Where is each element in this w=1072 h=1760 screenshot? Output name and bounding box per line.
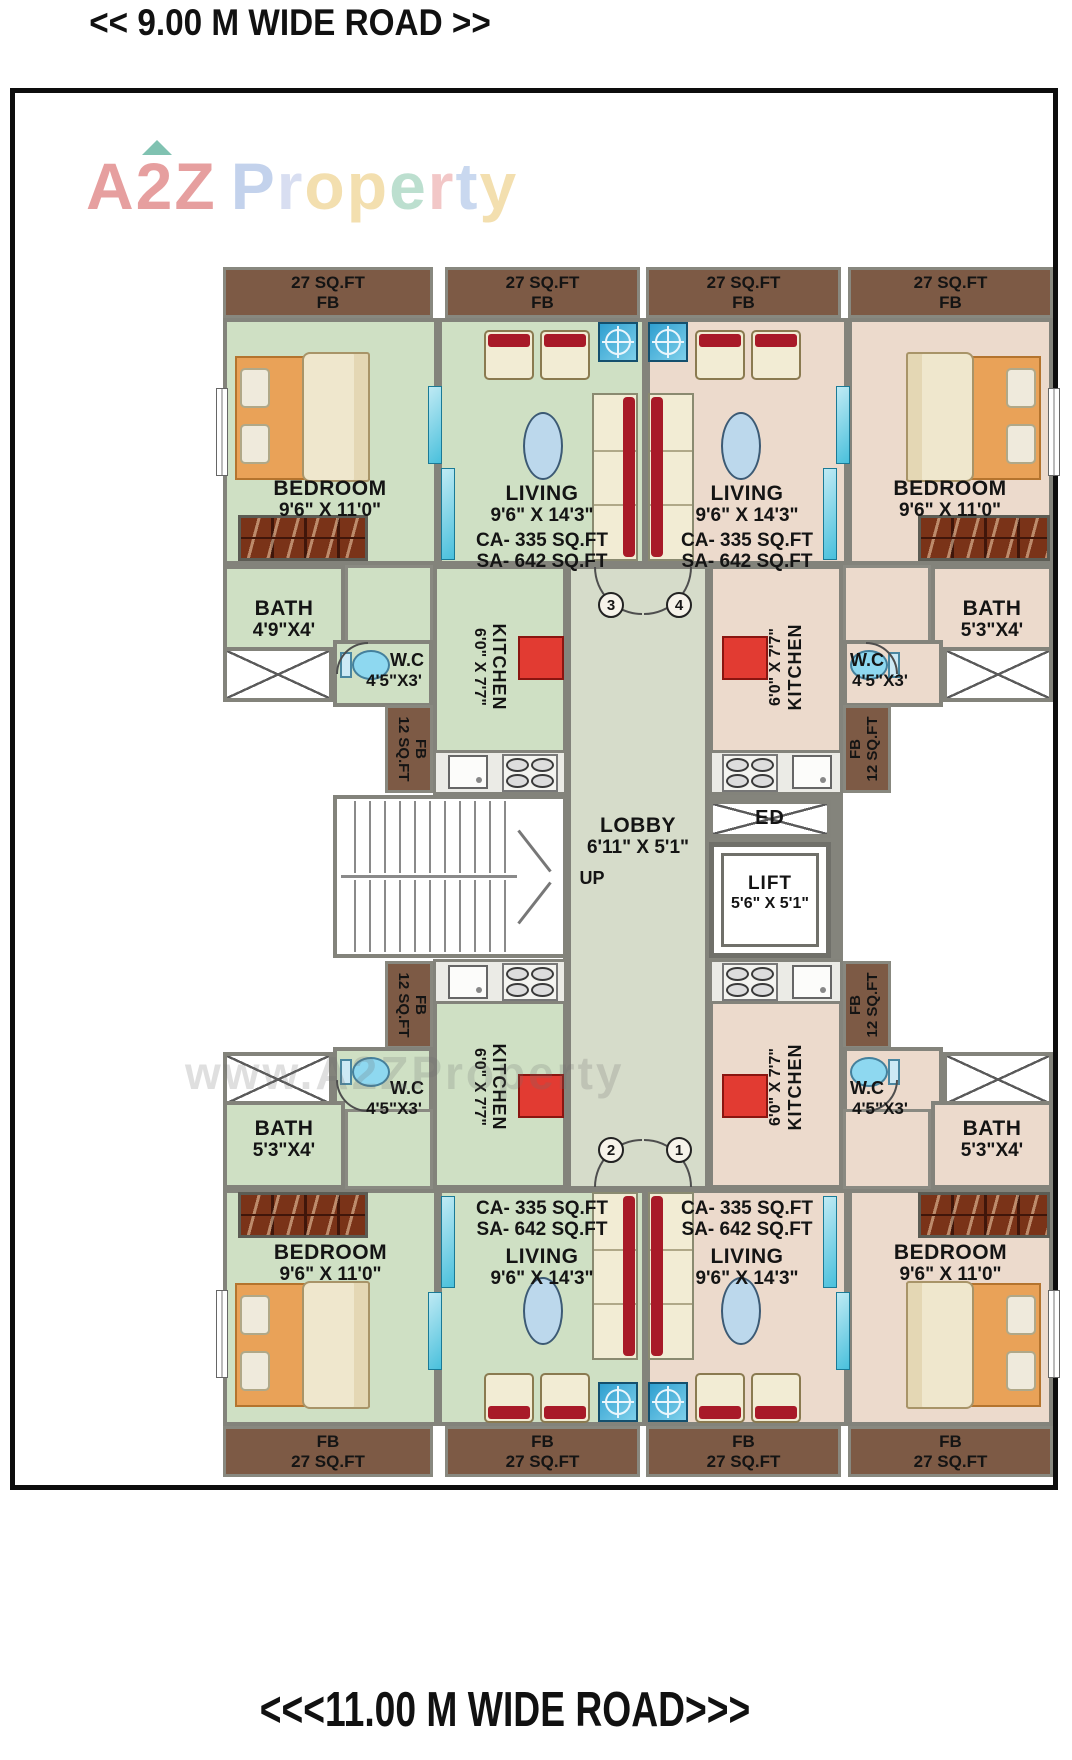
window-icon (1048, 388, 1060, 476)
coffee-table (523, 412, 563, 480)
flower-bed-12-top-right-label: FB 12 SQ.FT (847, 689, 887, 809)
passage-unit3 (345, 565, 433, 645)
bed (302, 352, 370, 482)
pillow (1006, 1295, 1036, 1335)
brand-watermark-a2z: A2Z (86, 149, 217, 223)
window-icon (216, 388, 228, 476)
electrical-duct-label: ED (713, 807, 827, 830)
pillow (1006, 368, 1036, 408)
kitchen-unit4-label: 6'0" X 7'7" KITCHEN (767, 602, 811, 732)
kitchen-platform (518, 636, 564, 680)
bedroom-unit3-label: BEDROOM 9'6" X 11'0" (240, 478, 420, 521)
pillow (1006, 1351, 1036, 1391)
wc-unit1-label: W.C 4'5"X3' (838, 1078, 922, 1119)
kitchen-sink (792, 965, 832, 999)
flower-bed-12-top-left-label: FB 12 SQ.FT (389, 689, 429, 809)
flower-bed-bottom-1: FB27 SQ.FT (223, 1426, 433, 1477)
ceiling-fan-icon (648, 322, 688, 362)
duct-unit4 (943, 647, 1053, 702)
lobby-label: LOBBY 6'11" X 5'1" (577, 815, 699, 858)
armchair (484, 1373, 534, 1423)
lift: LIFT 5'6" X 5'1" (709, 842, 831, 958)
unit-number-3: 3 (598, 592, 624, 618)
flower-bed-bottom-4: FB27 SQ.FT (848, 1426, 1053, 1477)
bedroom-unit2-label: BEDROOM 9'6" X 11'0" (233, 1242, 428, 1285)
armchair (540, 1373, 590, 1423)
www-watermark: www.A2ZProperty (185, 1046, 624, 1100)
living-unit1-label: CA- 335 SQ.FT SA- 642 SQ.FT LIVING 9'6" … (658, 1198, 836, 1289)
duct-unit1 (943, 1052, 1053, 1107)
bath-unit4-label: BATH 5'3"X4' (935, 598, 1049, 641)
coffee-table (721, 412, 761, 480)
stair-treads-lower (341, 880, 517, 952)
armchair (540, 330, 590, 380)
bath-unit3-label: BATH 4'9"X4' (227, 598, 341, 641)
living-unit3-label: LIVING 9'6" X 14'3" CA- 335 SQ.FT SA- 64… (453, 483, 631, 572)
bed (906, 1281, 974, 1409)
flower-bed-bottom-2: FB27 SQ.FT (445, 1426, 640, 1477)
kitchen-sink (792, 755, 832, 789)
stair-treads-upper (341, 801, 517, 873)
pillow (240, 368, 270, 408)
wardrobe-unit4 (918, 515, 1050, 561)
living-unit2-label: CA- 335 SQ.FT SA- 642 SQ.FT LIVING 9'6" … (453, 1198, 631, 1289)
stove-icon (722, 754, 778, 792)
window-vent-icon (836, 1292, 850, 1370)
staircase (333, 795, 567, 958)
wardrobe-unit1 (918, 1192, 1050, 1238)
floor-plan-canvas: << 9.00 M WIDE ROAD >> <<<11.00 M WIDE R… (0, 0, 1072, 1760)
lift-label: LIFT 5'6" X 5'1" (714, 873, 826, 913)
pillow (1006, 424, 1036, 464)
ceiling-fan-icon (648, 1382, 688, 1422)
armchair (695, 330, 745, 380)
window-vent-icon (836, 386, 850, 464)
ceiling-fan-icon (598, 1382, 638, 1422)
living-unit4-label: LIVING 9'6" X 14'3" CA- 335 SQ.FT SA- 64… (658, 483, 836, 572)
bedroom-unit4-label: BEDROOM 9'6" X 11'0" (860, 478, 1040, 521)
flower-bed-top-4: 27 SQ.FTFB (848, 267, 1053, 318)
brand-watermark-property: Property (231, 149, 518, 223)
electrical-duct: ED (709, 800, 831, 838)
stove-icon (502, 754, 558, 792)
kitchen-platform (722, 1074, 768, 1118)
road-label-top: << 9.00 M WIDE ROAD >> (29, 2, 551, 44)
house-icon (142, 140, 172, 155)
wc-unit4-label: W.C 4'5"X3' (838, 650, 922, 691)
ceiling-fan-icon (598, 322, 638, 362)
window-vent-icon (428, 1292, 442, 1370)
flower-bed-top-1: 27 SQ.FTFB (223, 267, 433, 318)
wardrobe-unit3 (238, 515, 368, 561)
bedroom-unit1-label: BEDROOM 9'6" X 11'0" (858, 1242, 1043, 1285)
stove-icon (722, 963, 778, 1001)
passage-unit2 (345, 1109, 433, 1189)
pillow (240, 1295, 270, 1335)
road-label-bottom: <<<11.00 M WIDE ROAD>>> (121, 1682, 889, 1738)
unit-number-2: 2 (598, 1137, 624, 1163)
window-icon (216, 1290, 228, 1378)
armchair (751, 1373, 801, 1423)
kitchen-sink (448, 965, 488, 999)
kitchen-unit1-label: 6'0" X 7'7" KITCHEN (767, 1022, 811, 1152)
stairs-up-label: UP (570, 868, 614, 889)
bed (302, 1281, 370, 1409)
stair-arrow-icon (517, 830, 551, 873)
pillow (240, 424, 270, 464)
window-vent-icon (428, 386, 442, 464)
duct-unit3 (223, 647, 333, 702)
kitchen-platform (722, 636, 768, 680)
kitchen-sink (448, 755, 488, 789)
unit-number-4: 4 (666, 592, 692, 618)
wardrobe-unit2 (238, 1192, 368, 1238)
flower-bed-top-3: 27 SQ.FTFB (646, 267, 841, 318)
flower-bed-12-bottom-right-label: FB 12 SQ.FT (847, 945, 887, 1065)
unit-number-1: 1 (666, 1137, 692, 1163)
kitchen-unit3-label: KITCHEN 6'0" X 7'7" (465, 602, 509, 732)
passage-unit1 (843, 1109, 931, 1189)
stove-icon (502, 963, 558, 1001)
armchair (751, 330, 801, 380)
wc-unit3-label: W.C 4'5"X3' (352, 650, 436, 691)
armchair (695, 1373, 745, 1423)
bath-unit2-label: BATH 5'3"X4' (227, 1118, 341, 1161)
bed (906, 352, 974, 482)
brand-watermark: A2ZProperty (86, 148, 518, 224)
flower-bed-bottom-3: FB27 SQ.FT (646, 1426, 841, 1477)
flower-bed-top-2: 27 SQ.FTFB (445, 267, 640, 318)
stair-arrow-icon (517, 882, 551, 925)
passage-unit4 (843, 565, 931, 645)
stair-landing-line (341, 875, 517, 878)
window-icon (1048, 1290, 1060, 1378)
bath-unit1-label: BATH 5'3"X4' (935, 1118, 1049, 1161)
pillow (240, 1351, 270, 1391)
armchair (484, 330, 534, 380)
